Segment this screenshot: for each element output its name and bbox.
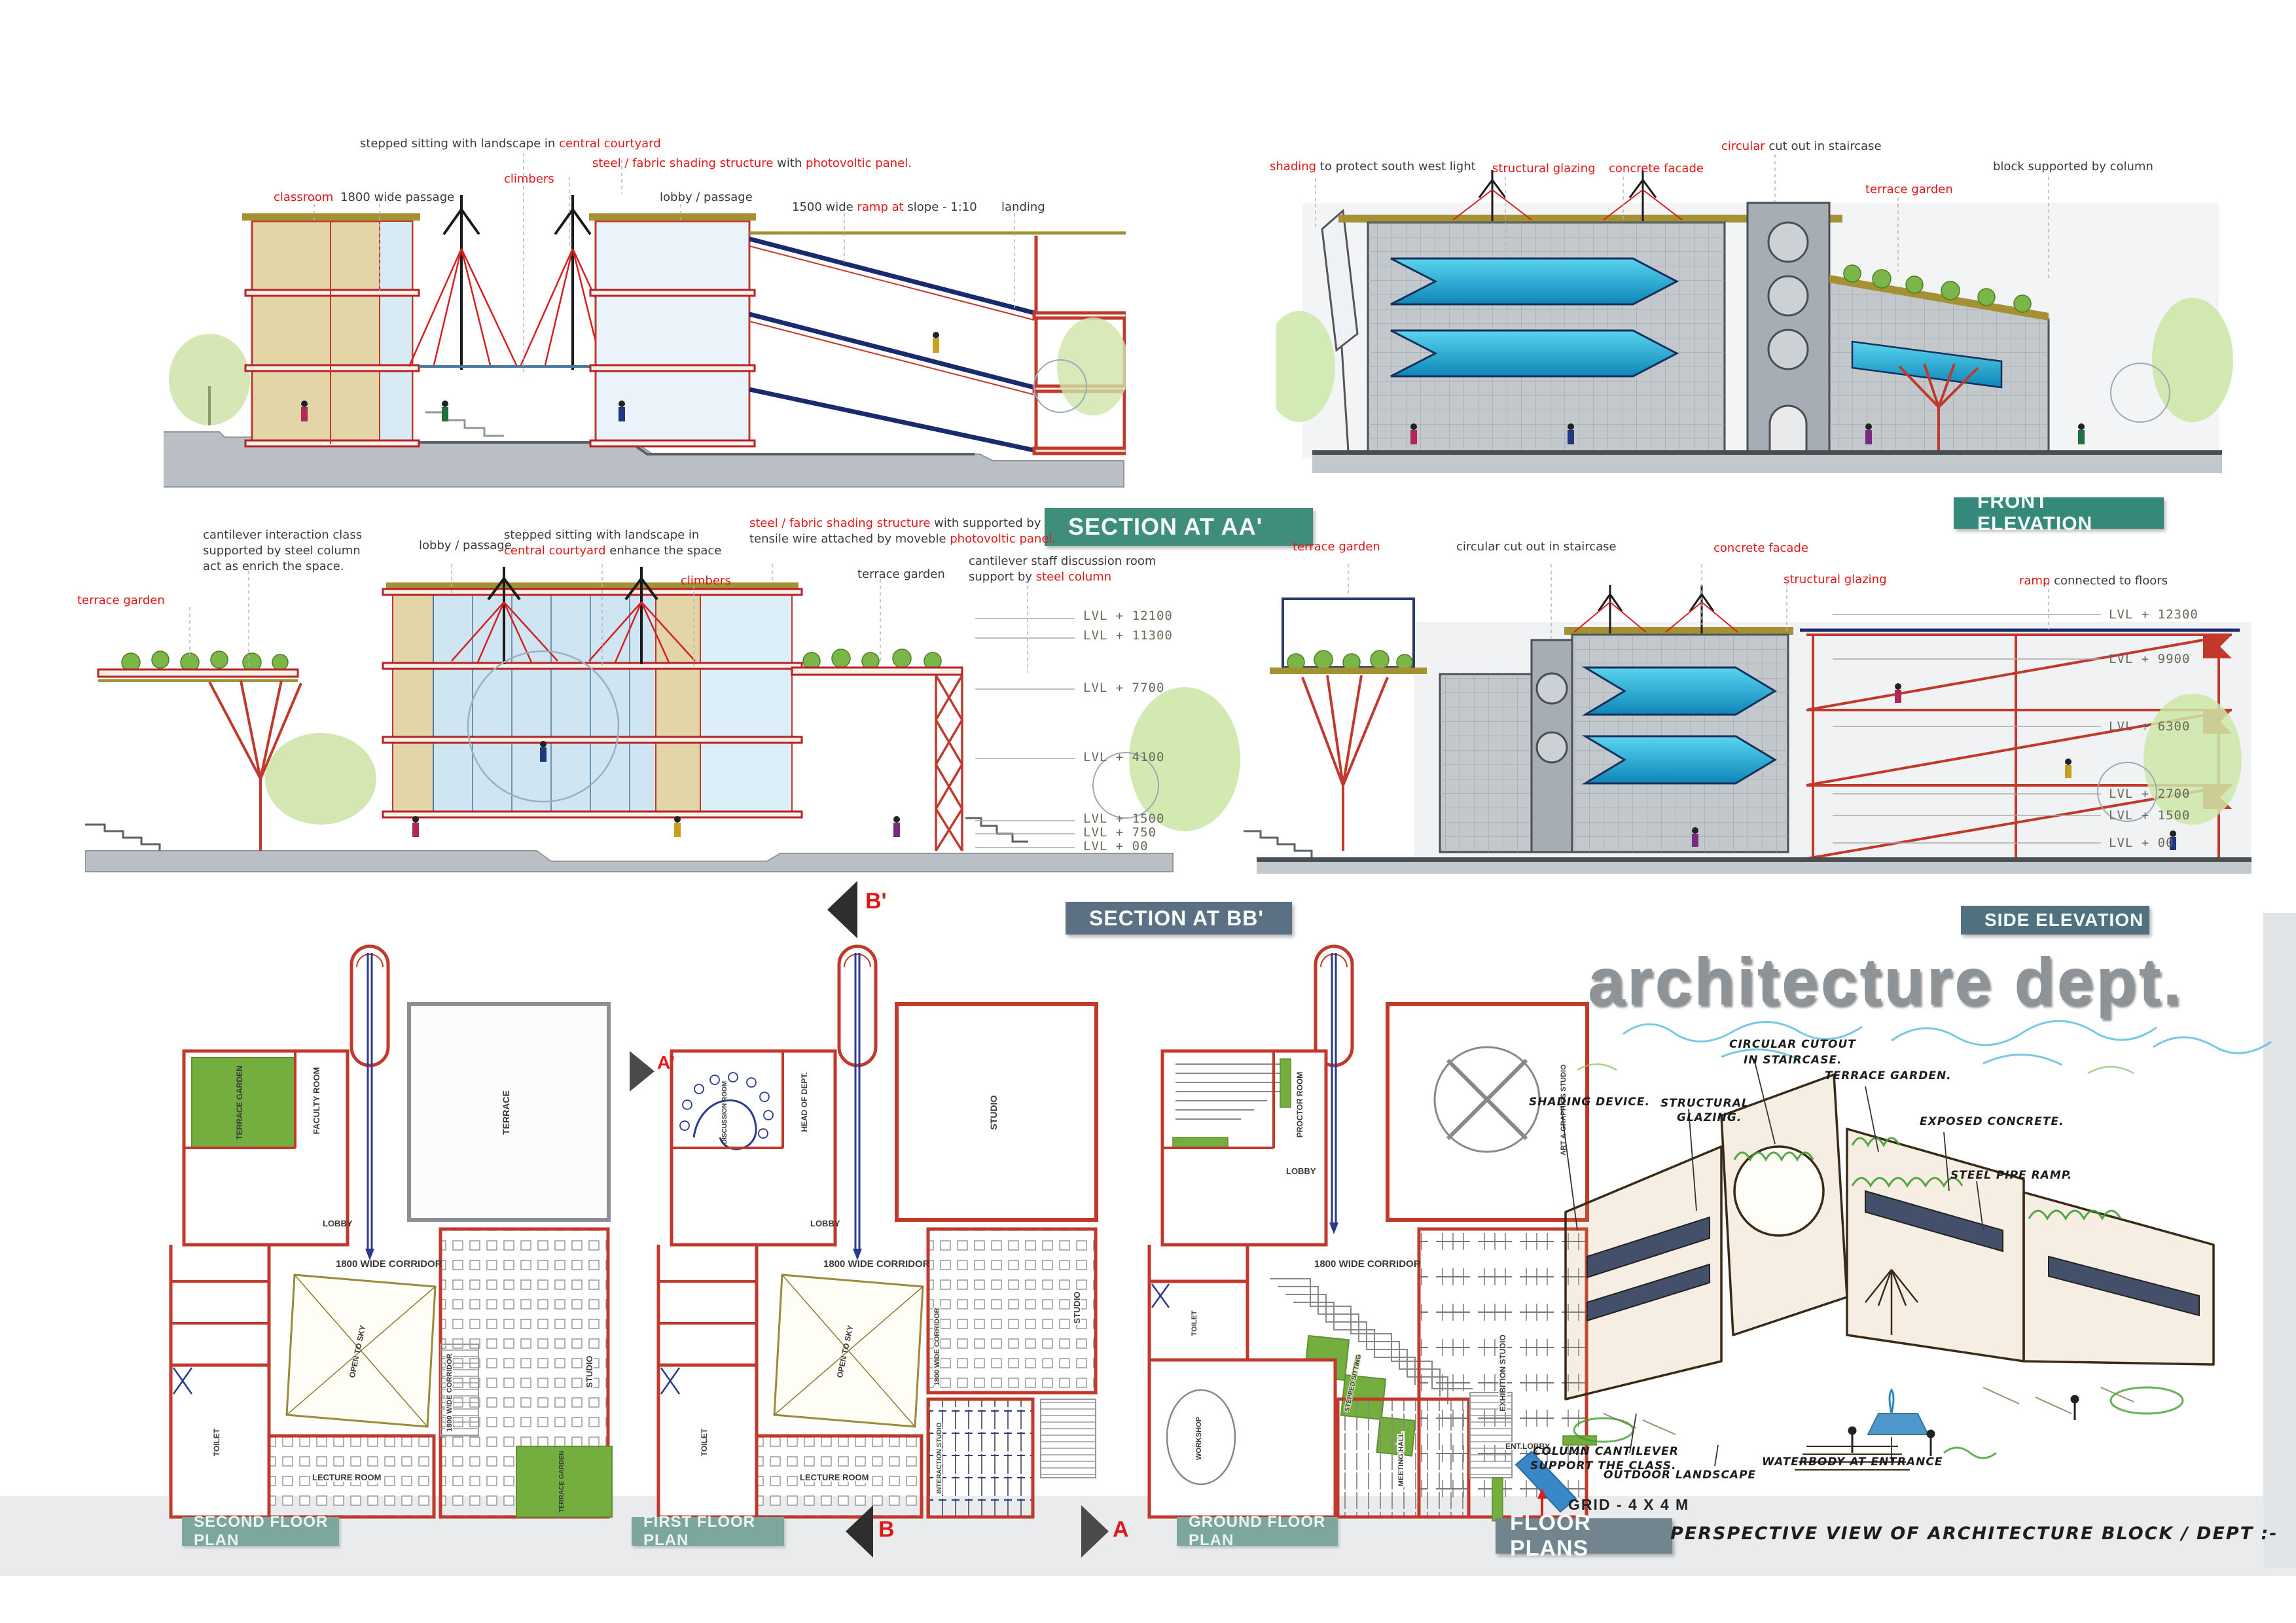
- level-2700: LVL + 2700: [2109, 787, 2190, 801]
- annotation-passage: 1800 wide passage: [340, 190, 454, 205]
- section-marker-a-top: A': [657, 1052, 675, 1073]
- sketch-annotation-circular-2: IN STAIRCASE.: [1744, 1054, 1842, 1067]
- room-label-toilet-b: TOILET: [700, 1428, 709, 1456]
- room-label-terrace: TERRACE: [501, 1090, 511, 1135]
- level-7700: LVL + 7700: [1083, 681, 1164, 695]
- sketch-annotation-structural-2: GLAZING.: [1677, 1111, 1742, 1124]
- sketch-annotation-column-1: COLUMN CANTILEVER: [1533, 1445, 1679, 1458]
- front-elevation-banner: FRONT ELEVATION: [1954, 497, 2164, 529]
- annotation-circular-cutout: circular cut out in staircase: [1721, 139, 1882, 154]
- first-floor-plan-drawing: DISCUSSION ROOM HEAD OF DEPT. STUDIO LOB…: [648, 941, 1106, 1530]
- level-750: LVL + 750: [1083, 825, 1157, 840]
- second-floor-plan-drawing: TERRACE GARDEN FACULTY ROOM TERRACE LOBB…: [160, 941, 619, 1530]
- sketch-annotation-waterbody: WATERBODY AT ENTRANCE: [1762, 1455, 1943, 1469]
- perspective-caption: PERSPECTIVE VIEW OF ARCHITECTURE BLOCK /…: [1670, 1524, 2278, 1544]
- room-label-discussion: DISCUSSION ROOM: [721, 1081, 728, 1144]
- room-label-studio-b: STUDIO: [1072, 1291, 1082, 1323]
- room-label-faculty: FACULTY ROOM: [312, 1067, 321, 1135]
- room-label-lecture: LECTURE ROOM: [312, 1472, 381, 1482]
- annotation-concrete-facade: concrete facade: [1609, 161, 1704, 177]
- level-1500-se: LVL + 1500: [2109, 808, 2190, 823]
- annotation-stepped-sitting-bb: stepped sitting with landscape in centra…: [504, 527, 721, 559]
- room-label-toilet-c: TOILET: [1191, 1310, 1198, 1336]
- annotation-ramp-connected: ramp connected to floors: [2019, 573, 2168, 589]
- annotation-lobby-passage: lobby / passage: [660, 190, 753, 205]
- level-1500-bb: LVL + 1500: [1083, 811, 1164, 826]
- section-marker-a-bottom: A: [1113, 1517, 1129, 1543]
- annotation-stepped-sitting: stepped sitting with landscape in centra…: [360, 136, 661, 152]
- room-label-toilet: TOILET: [212, 1428, 221, 1456]
- level-11300: LVL + 11300: [1083, 628, 1173, 643]
- sketch-annotation-terrace: TERRACE GARDEN.: [1825, 1069, 1952, 1082]
- section-marker-b-top-flag: [827, 881, 857, 938]
- level-6300: LVL + 6300: [2109, 719, 2190, 734]
- annotation-staff-room: cantilever staff discussion room support…: [969, 554, 1156, 585]
- section-bb-drawing: [85, 563, 1257, 874]
- annotation-landing: landing: [1001, 200, 1045, 215]
- level-00-se: LVL + 00: [2109, 836, 2174, 850]
- sketch-annotation-outdoor: OUTDOOR LANDSCAPE: [1604, 1469, 1756, 1482]
- room-label-studio: STUDIO: [584, 1355, 594, 1387]
- room-label-corridor-v-b: 1800 WIDE CORRIDOR: [933, 1308, 941, 1385]
- room-label-corridor: 1800 WIDE CORRIDOR: [336, 1258, 442, 1270]
- room-label-proctor: PROCTOR ROOM: [1295, 1072, 1304, 1137]
- section-aa-banner: SECTION AT AA': [1045, 508, 1313, 546]
- section-marker-b-top: B': [865, 889, 887, 914]
- room-label-lobby-b: LOBBY: [810, 1219, 840, 1228]
- annotation-terrace-garden-se: terrace garden: [1293, 539, 1380, 555]
- room-label-hod: HEAD OF DEPT.: [800, 1072, 809, 1132]
- second-floor-plan-banner: SECOND FLOOR PLAN: [182, 1517, 339, 1546]
- annotation-structural-glazing: structural glazing: [1492, 161, 1596, 177]
- annotation-lobby-passage-bb: lobby / passage: [419, 538, 512, 554]
- room-label-exhibition: EXHIBITION STUDIO: [1498, 1334, 1507, 1411]
- sketch-annotation-exposed: EXPOSED CONCRETE.: [1920, 1115, 2064, 1128]
- annotation-terrace-garden-left: terrace garden: [77, 593, 165, 609]
- level-4100: LVL + 4100: [1083, 750, 1164, 764]
- annotation-block-supported: block supported by column: [1993, 159, 2153, 175]
- annotation-text: stepped sitting with landscape in: [360, 137, 559, 151]
- sketch-annotation-circular-1: CIRCULAR CUTOUT: [1729, 1038, 1856, 1051]
- room-label-terrace-garden-top: TERRACE GARDEN: [235, 1065, 244, 1139]
- sketch-annotation-shading: SHADING DEVICE.: [1529, 1096, 1650, 1109]
- room-label-corridor-b: 1800 WIDE CORRIDOR: [823, 1258, 930, 1270]
- annotation-terrace-garden: terrace garden: [1865, 182, 1953, 198]
- annotation-concrete-facade-se: concrete facade: [1713, 541, 1808, 556]
- side-elevation-banner: SIDE ELEVATION: [1961, 906, 2149, 935]
- room-label-workshop: WORKSHOP: [1195, 1417, 1203, 1460]
- annotation-classroom: classroom: [274, 190, 333, 205]
- first-floor-plan-banner: FIRST FLOOR PLAN: [632, 1517, 784, 1546]
- room-label-lobby: LOBBY: [323, 1219, 353, 1228]
- room-label-meeting: MEETING HALL: [1397, 1432, 1405, 1486]
- annotation-steel-fabric-bb: steel / fabric shading structure with su…: [749, 516, 1056, 547]
- architecture-sheet: stepped sitting with landscape in centra…: [0, 0, 2296, 1623]
- front-elevation-drawing: [1276, 151, 2245, 491]
- level-12300: LVL + 12300: [2109, 607, 2198, 622]
- section-bb-banner: SECTION AT BB': [1066, 902, 1292, 935]
- annotation-steel-fabric: steel / fabric shading structure with ph…: [592, 156, 912, 171]
- annotation-text-red: central courtyard: [559, 137, 661, 151]
- annotation-circular-se: circular cut out in staircase: [1456, 539, 1617, 555]
- annotation-cantilever-class: cantilever interaction class supported b…: [203, 527, 362, 575]
- annotation-climbers: climbers: [504, 171, 554, 187]
- sketch-annotation-steel-pipe: STEEL PIPE RAMP.: [1950, 1169, 2072, 1182]
- annotation-climbers-bb: climbers: [681, 573, 731, 589]
- room-label-lecture-b: LECTURE ROOM: [800, 1472, 869, 1482]
- annotation-shading: shading to protect south west light: [1270, 159, 1476, 175]
- ground-floor-plan-banner: GROUND FLOOR PLAN: [1177, 1517, 1338, 1546]
- room-label-lobby-c: LOBBY: [1286, 1166, 1316, 1176]
- section-marker-b-bottom: B: [878, 1517, 895, 1543]
- room-label-interaction: INTERACTION STUDIO: [936, 1422, 943, 1493]
- sketch-annotation-structural-1: STRUCTURAL: [1660, 1097, 1749, 1110]
- annotation-structural-glazing-se: structural glazing: [1784, 572, 1887, 588]
- level-00-bb: LVL + 00: [1083, 839, 1149, 853]
- room-label-terrace-garden-bottom: TERRACE GARDEN: [558, 1451, 565, 1512]
- room-label-corridor-v: 1800 WIDE CORRIDOR: [446, 1353, 454, 1431]
- annotation-ramp-slope: 1500 wide ramp at slope - 1:10: [792, 200, 977, 215]
- room-label-corridor-c: 1800 WIDE CORRIDOR: [1314, 1258, 1421, 1270]
- grid-note: GRID - 4 X 4 M: [1568, 1496, 1689, 1514]
- level-9900: LVL + 9900: [2109, 652, 2190, 666]
- room-label-studio-top: STUDIO: [988, 1095, 999, 1130]
- annotation-terrace-garden-bb: terrace garden: [857, 567, 945, 582]
- level-12100: LVL + 12100: [1083, 609, 1173, 623]
